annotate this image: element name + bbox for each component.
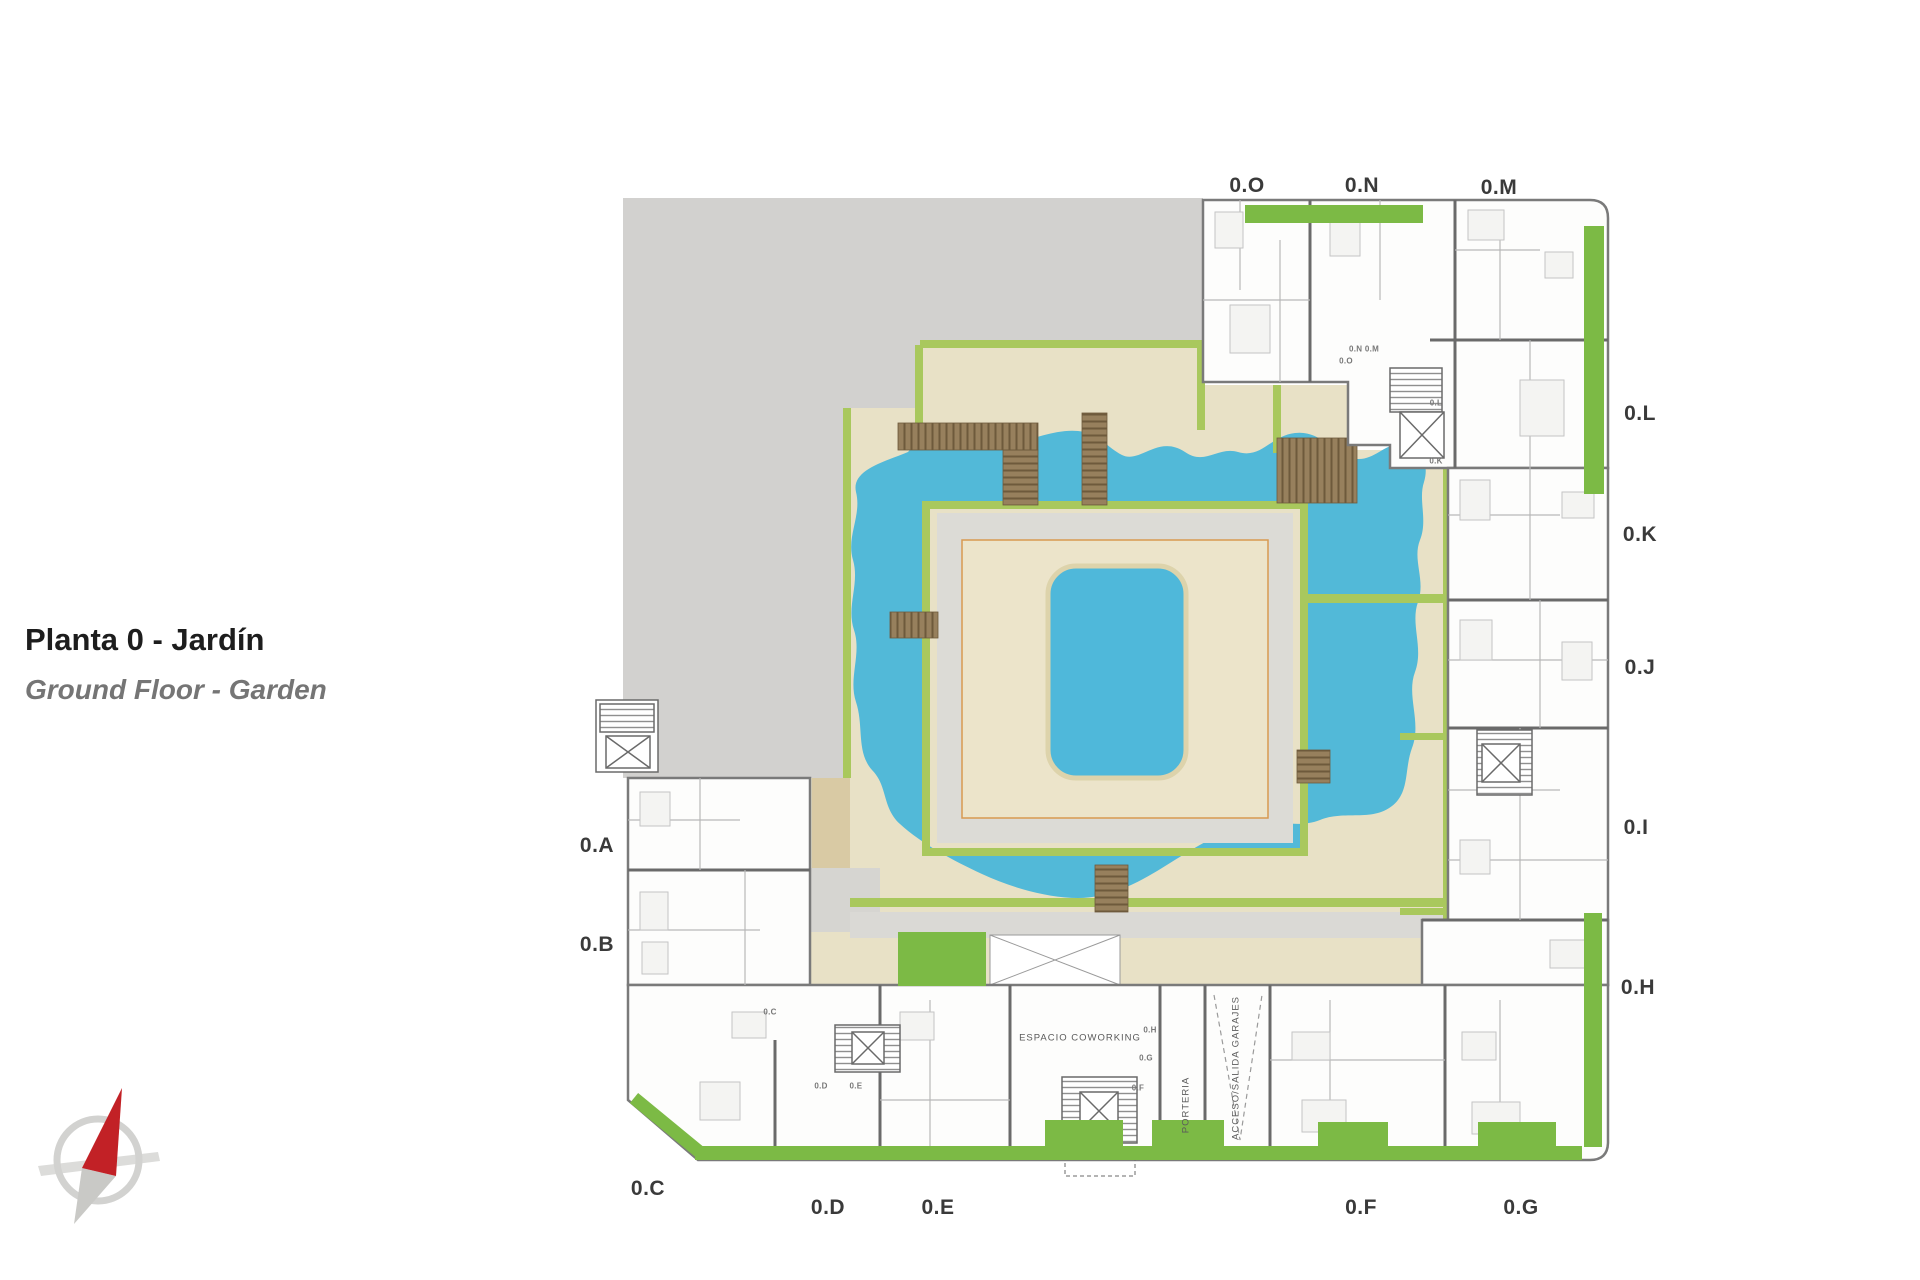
deck-west-bridge bbox=[890, 612, 938, 638]
stair-core-west bbox=[596, 700, 658, 772]
compass-needle bbox=[82, 1088, 122, 1176]
unit-label-0O: 0.O bbox=[1229, 174, 1264, 198]
tag-0k: 0.K bbox=[1429, 457, 1442, 466]
deck-top-middle bbox=[1082, 413, 1107, 505]
unit-label-0I: 0.I bbox=[1624, 816, 1649, 840]
unit-label-0L: 0.L bbox=[1624, 402, 1656, 426]
stair-core-east bbox=[1477, 730, 1532, 795]
unit-label-0M: 0.M bbox=[1481, 176, 1518, 200]
unit-label-0C: 0.C bbox=[631, 1177, 665, 1201]
deck-top-left bbox=[898, 423, 1038, 450]
tag-0g: 0.G bbox=[1139, 1054, 1153, 1063]
unit-label-0D: 0.D bbox=[811, 1196, 845, 1220]
coworking-label: ESPACIO COWORKING bbox=[1019, 1033, 1141, 1044]
unit-label-0G: 0.G bbox=[1503, 1196, 1538, 1220]
north-compass-icon bbox=[32, 1082, 172, 1232]
deck-east-bridge bbox=[1297, 750, 1330, 783]
tag-0f: 0.F bbox=[1132, 1084, 1144, 1093]
unit-label-0K: 0.K bbox=[1623, 523, 1657, 547]
stair-core-south-west bbox=[835, 1025, 900, 1072]
deck-top-left-leg bbox=[1003, 450, 1038, 505]
tag-0n0m: 0.N 0.M bbox=[1349, 345, 1379, 354]
unit-label-0J: 0.J bbox=[1625, 656, 1656, 680]
floor-plan-page: Planta 0 - Jardín Ground Floor - Garden … bbox=[0, 0, 1920, 1280]
ramp-cross-box bbox=[990, 935, 1120, 985]
tag-0o: 0.O bbox=[1339, 357, 1353, 366]
deck-top-right bbox=[1277, 438, 1357, 503]
garaje-label: ACCESO/SALIDA GARAJES bbox=[1231, 996, 1242, 1140]
courtyard-tan-strip bbox=[812, 778, 850, 868]
tag-0d: 0.D bbox=[814, 1082, 827, 1091]
unit-label-0B: 0.B bbox=[580, 933, 614, 957]
unit-label-0F: 0.F bbox=[1345, 1196, 1377, 1220]
tag-0h: 0.H bbox=[1143, 1026, 1156, 1035]
deck-south-bridge bbox=[1095, 865, 1128, 912]
unit-label-0A: 0.A bbox=[580, 834, 614, 858]
floor-plan-drawing bbox=[0, 0, 1920, 1280]
unit-label-0E: 0.E bbox=[921, 1196, 954, 1220]
swimming-pool bbox=[1048, 566, 1186, 778]
tag-0c: 0.C bbox=[763, 1008, 776, 1017]
page-subtitle: Ground Floor - Garden bbox=[25, 674, 327, 706]
unit-label-0N: 0.N bbox=[1345, 174, 1379, 198]
unit-label-0H: 0.H bbox=[1621, 976, 1655, 1000]
porteria-label: PORTERIA bbox=[1181, 1077, 1192, 1133]
page-title: Planta 0 - Jardín bbox=[25, 622, 264, 658]
tag-0l: 0.L bbox=[1430, 399, 1442, 408]
tag-0e: 0.E bbox=[850, 1082, 863, 1091]
